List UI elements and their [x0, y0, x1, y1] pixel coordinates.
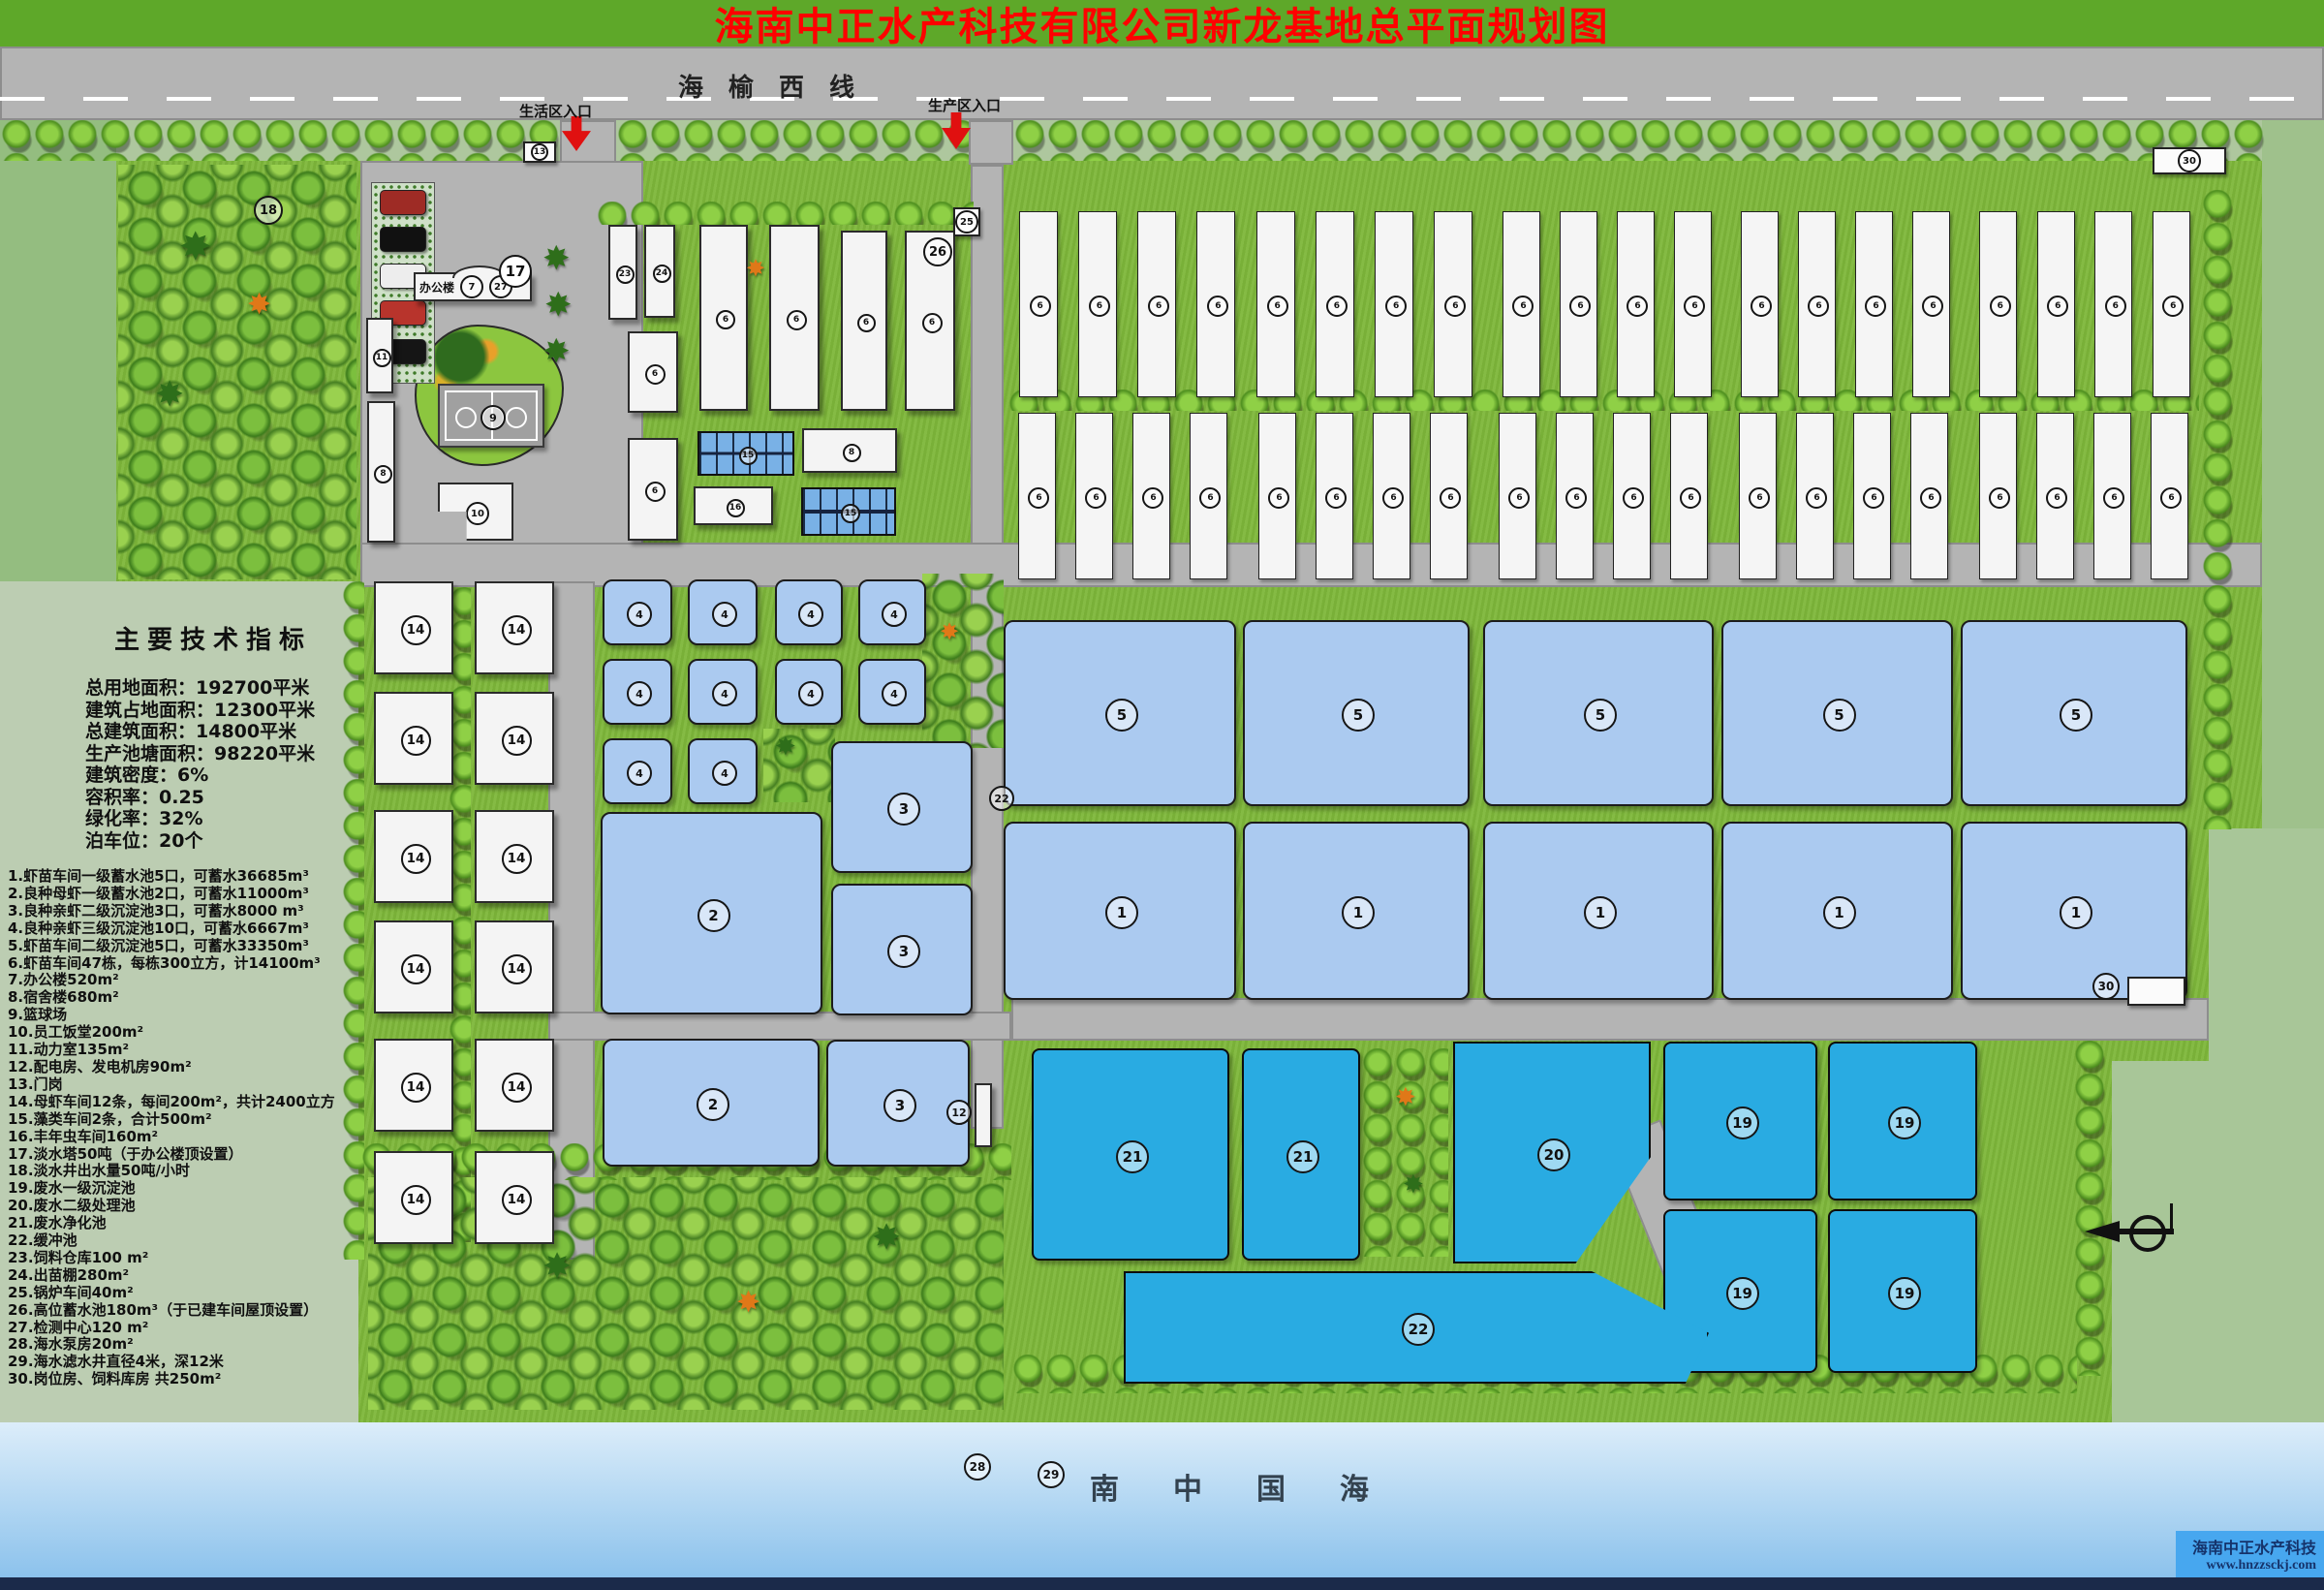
- number-label-4: 4: [798, 681, 823, 706]
- number-label-6: 6: [2162, 296, 2184, 317]
- roadside-bushes: [616, 120, 969, 161]
- workshop-strip: 6: [1910, 413, 1948, 579]
- number-label-15: 15: [739, 447, 758, 465]
- number-label-5: 5: [1823, 699, 1856, 732]
- number-label-6: 6: [1028, 487, 1049, 509]
- number-label-6: 6: [1569, 296, 1591, 317]
- workshop-strip: 6: [1674, 211, 1712, 397]
- number-label-6: 6: [1207, 296, 1228, 317]
- legend-item: 5.虾苗车间二级沉淀池5口，可蓄水33350m³: [8, 938, 335, 955]
- ornamental-tree: ✸: [940, 620, 959, 643]
- number-label-22: 22: [1402, 1313, 1435, 1346]
- indicator-line: 绿化率：32%: [85, 808, 315, 830]
- number-label-6: 6: [1684, 296, 1705, 317]
- legend-item: 22.缓冲池: [8, 1232, 335, 1250]
- number-label-14: 14: [502, 615, 532, 645]
- number-label-6: 6: [2160, 487, 2182, 509]
- number-label-6: 6: [2103, 487, 2124, 509]
- number-label-6: 6: [1326, 296, 1348, 317]
- number-label-6: 6: [2105, 296, 2126, 317]
- workshop-strip: 6: [1739, 413, 1777, 579]
- freshwater-well-18-marker: 18: [254, 196, 283, 225]
- number-label-4: 4: [712, 761, 737, 786]
- sediment-pond-3: 3: [826, 1040, 970, 1167]
- forest-tree: ✸: [542, 1250, 572, 1285]
- legend-item: 21.废水净化池: [8, 1215, 335, 1232]
- number-label-14: 14: [502, 954, 532, 984]
- workshop-strip: 6: [1316, 211, 1354, 397]
- pond-divider-bushes: [1361, 1048, 1448, 1257]
- number-label-19: 19: [1888, 1277, 1921, 1310]
- sediment-pond-4: 4: [603, 738, 672, 804]
- number-label-2: 2: [697, 1088, 729, 1121]
- workshop-strip: 6: [2036, 413, 2074, 579]
- number-label-6: 6: [922, 313, 943, 333]
- indicator-line: 总建筑面积：14800平米: [85, 721, 315, 743]
- sea-filter-well-29-marker: 29: [1038, 1461, 1065, 1488]
- shrimp-workshop-row: 6666: [1730, 211, 1959, 395]
- forest-tree: ✸: [155, 378, 184, 413]
- workshop-strip: 6: [1075, 413, 1113, 579]
- number-label-1: 1: [1584, 896, 1617, 929]
- legend-item: 10.员工饭堂200m²: [8, 1024, 335, 1042]
- elevated-tank-26-marker: 26: [923, 237, 952, 266]
- reservoir-pond-1: 1: [1961, 822, 2187, 1000]
- number-label-6: 6: [1680, 487, 1701, 509]
- workshop-strip: 6: [1912, 211, 1950, 397]
- indicators-list: 总用地面积：192700平米建筑占地面积：12300平米总建筑面积：14800平…: [85, 677, 315, 852]
- number-label-25: 25: [955, 210, 978, 234]
- number-label-13: 13: [531, 143, 548, 161]
- sediment-pond-5: 5: [1721, 620, 1953, 806]
- legend-item: 17.淡水塔50吨（于办公楼顶设置）: [8, 1146, 335, 1164]
- mother-shrimp-workshop-14: 14: [374, 920, 453, 1013]
- workshop-strip: 6: [1316, 413, 1353, 579]
- algae-workshop-15: 15: [801, 487, 896, 536]
- workshop-strip: 6: [1078, 211, 1117, 397]
- site-plan-canvas: 6666666666666666666666666666666666666666…: [0, 0, 2324, 1590]
- workshop-strip: 6: [2093, 413, 2131, 579]
- number-label-2: 2: [697, 899, 730, 932]
- number-label-6: 6: [1989, 487, 2010, 509]
- logo-box: 海南中正水产科技 www.hnzzsckj.com: [2176, 1531, 2324, 1577]
- number-label-6: 6: [1751, 296, 1772, 317]
- legend-item: 25.锅炉车间40m²: [8, 1285, 335, 1302]
- legend-item: 6.虾苗车间47栋，每栋300立方，计14100m³: [8, 955, 335, 973]
- compass-arrowhead: [2085, 1221, 2120, 1242]
- number-label-6: 6: [645, 482, 666, 502]
- number-label-3: 3: [887, 935, 920, 968]
- compass-ring: [2129, 1215, 2166, 1252]
- number-label-23: 23: [616, 265, 635, 284]
- number-label-5: 5: [1342, 699, 1375, 732]
- number-label-14: 14: [401, 1185, 431, 1215]
- mother-shrimp-workshop-14: 14: [475, 692, 554, 785]
- number-label-4: 4: [712, 602, 737, 627]
- number-label-6: 6: [716, 310, 735, 329]
- sediment-pond-3: 3: [831, 741, 973, 873]
- buffer-pond-22: 22: [1124, 1271, 1709, 1384]
- forest-tree: ✸: [736, 1289, 760, 1318]
- sediment-pond-4: 4: [688, 659, 758, 725]
- number-label-6: 6: [2046, 487, 2067, 509]
- south-forest: [368, 1177, 1004, 1410]
- number-label-6: 6: [1749, 487, 1770, 509]
- sediment-pond-5: 5: [1483, 620, 1714, 806]
- shrimp-workshop-row: 6666: [1968, 211, 2199, 395]
- algae-workshop-15: 15: [697, 431, 794, 476]
- guard-feed-house-30b-marker: 30: [2092, 973, 2120, 1000]
- sea-pump-house-28-marker: 28: [964, 1453, 991, 1481]
- number-label-24: 24: [653, 265, 671, 283]
- shrimp-workshop-row: 66666666: [1007, 211, 1482, 395]
- number-label-6: 6: [1440, 487, 1461, 509]
- south-cross-road: [1011, 998, 2209, 1041]
- workshop-strip: 6: [1499, 413, 1536, 579]
- legend-item: 8.宿舍楼680m²: [8, 989, 335, 1007]
- number-label-4: 4: [627, 602, 652, 627]
- workshop-strip: 6: [1613, 413, 1651, 579]
- number-label-14: 14: [502, 844, 532, 874]
- reservoir-pond-2: 2: [601, 812, 822, 1014]
- workshop-strip: 6: [1196, 211, 1235, 397]
- feed-warehouse-23: 23: [608, 225, 637, 320]
- number-label-6: 6: [1808, 296, 1829, 317]
- mother-shrimp-workshop-14: 14: [475, 581, 554, 674]
- technical-indicators: 主要技术指标 总用地面积：192700平米建筑占地面积：12300平米总建筑面积…: [85, 620, 315, 852]
- forest-tree: ✸: [247, 291, 271, 320]
- workshop-strip: 6: [1670, 413, 1708, 579]
- number-label-4: 4: [882, 681, 907, 706]
- number-label-6: 6: [1806, 487, 1827, 509]
- legend-item: 2.良种母虾一级蓄水池2口，可蓄水11000m³: [8, 886, 335, 903]
- wastewater-pond-19: 19: [1828, 1209, 1977, 1373]
- sediment-pond-3: 3: [831, 884, 973, 1015]
- number-label-4: 4: [712, 681, 737, 706]
- mother-shrimp-workshop-14: 14: [374, 1151, 453, 1244]
- workshop-strip: 6: [2094, 211, 2132, 397]
- sediment-pond-4: 4: [775, 659, 843, 725]
- mother-shrimp-workshop-14: 14: [475, 920, 554, 1013]
- entrance-road-left: [560, 120, 616, 165]
- legend-item: 26.高位蓄水池180m³（于已建车间屋顶设置）: [8, 1302, 335, 1320]
- number-label-6: 6: [857, 314, 876, 332]
- workshop-strip: 6: [1190, 413, 1227, 579]
- office-building-label: 办公楼: [419, 279, 454, 296]
- number-label-6: 6: [1623, 487, 1644, 509]
- legend-item: 28.海水泵房20m²: [8, 1336, 335, 1354]
- power-room-11: 11: [366, 318, 393, 393]
- workshop-strip: 6: [1979, 413, 2017, 579]
- workshop-6: 6: [699, 225, 748, 411]
- sediment-pond-4: 4: [858, 659, 926, 725]
- number-label-14: 14: [502, 1073, 532, 1103]
- legend-item: 18.淡水井出水量50吨/小时: [8, 1163, 335, 1180]
- ornamental-tree: ✸: [1403, 1172, 1424, 1198]
- wastewater-pond-19: 19: [1828, 1042, 1977, 1200]
- ornamental-tree: ✸: [775, 734, 796, 760]
- workshop-strip: 6: [1556, 413, 1594, 579]
- number-label-6: 6: [1267, 296, 1288, 317]
- number-label-14: 14: [401, 1073, 431, 1103]
- number-label-6: 6: [1089, 296, 1110, 317]
- number-label-6: 6: [2047, 296, 2068, 317]
- east-bushes: [2201, 190, 2236, 829]
- number-label-6: 6: [1627, 296, 1648, 317]
- indicator-line: 生产池塘面积：98220平米: [85, 743, 315, 765]
- workshop-strip: 6: [1796, 413, 1834, 579]
- entrance-label-right: 生产区入口: [928, 95, 1001, 115]
- purification-pond-21: 21: [1242, 1048, 1360, 1261]
- legend-item: 7.办公楼520m²: [8, 972, 335, 989]
- number-label-6: 6: [1030, 296, 1051, 317]
- number-label-6: 6: [1268, 487, 1289, 509]
- number-label-9: 9: [480, 405, 506, 430]
- court-key-right: [506, 407, 527, 428]
- sediment-pond-4: 4: [858, 579, 926, 645]
- power-distribution-12-marker: 12: [946, 1100, 972, 1125]
- small-grove: [922, 574, 1004, 748]
- gate-house-13: 13: [523, 141, 556, 163]
- roadside-bushes: [0, 120, 560, 161]
- palm-tree: ✸: [542, 335, 571, 368]
- legend-item: 27.检测中心120 m²: [8, 1320, 335, 1337]
- legend-item: 4.良种亲虾三级沉淀池10口，可蓄水6667m³: [8, 920, 335, 938]
- number-label-30: 30: [2178, 149, 2201, 172]
- mother-shrimp-workshop-14: 14: [475, 1151, 554, 1244]
- workshop-strip: 6: [1434, 211, 1472, 397]
- purification-pond-21: 21: [1032, 1048, 1229, 1261]
- number-label-14: 14: [401, 726, 431, 756]
- palm-tree: ✸: [544, 289, 573, 322]
- legend-item: 19.废水一级沉淀池: [8, 1180, 335, 1198]
- workshop-strip: 6: [1617, 211, 1655, 397]
- indicator-line: 泊车位：20个: [85, 830, 315, 853]
- number-label-6: 6: [1325, 487, 1347, 509]
- logo-url: www.hnzzsckj.com: [2206, 1558, 2316, 1574]
- west-forest: [118, 165, 356, 579]
- number-label-5: 5: [2060, 699, 2092, 732]
- indicator-line: 容积率：0.25: [85, 787, 315, 809]
- number-label-19: 19: [1888, 1107, 1921, 1139]
- number-label-1: 1: [1823, 896, 1856, 929]
- reservoir-pond-1: 1: [1721, 822, 1953, 1000]
- indicator-line: 建筑密度：6%: [85, 764, 315, 787]
- mother-shrimp-workshop-14: 14: [374, 692, 453, 785]
- entrance-road-right: [969, 120, 1013, 165]
- legend-item: 9.篮球场: [8, 1007, 335, 1024]
- palm-tree: ✸: [542, 242, 571, 275]
- number-label-6: 6: [1990, 296, 2011, 317]
- sediment-pond-5: 5: [1961, 620, 2187, 806]
- legend-item: 20.废水二级处理池: [8, 1198, 335, 1215]
- number-label-1: 1: [2060, 896, 2092, 929]
- number-label-6: 6: [1922, 296, 1943, 317]
- forest-tree: ✸: [872, 1221, 901, 1256]
- legend-item: 30.岗位房、饲料库房 共250m²: [8, 1371, 335, 1388]
- shrimp-workshop-row: 6666: [1248, 413, 1476, 577]
- workshop-strip: 6: [1741, 211, 1779, 397]
- number-label-6: 6: [1085, 487, 1106, 509]
- road-centerline: [0, 97, 2324, 101]
- water-tower-17-marker: 17: [499, 255, 532, 288]
- number-label-3: 3: [887, 793, 920, 826]
- compass-tail: [2170, 1203, 2173, 1231]
- number-label-6: 6: [645, 364, 666, 385]
- workshop-strip: 6: [1019, 211, 1058, 397]
- buffer-pond-22-marker: 22: [989, 786, 1014, 811]
- sediment-pond-4: 4: [688, 579, 758, 645]
- reservoir-pond-1: 1: [1004, 822, 1236, 1000]
- number-label-6: 6: [1385, 296, 1407, 317]
- number-label-1: 1: [1342, 896, 1375, 929]
- number-label-10: 10: [466, 502, 489, 525]
- legend-item: 11.动力室135m²: [8, 1042, 335, 1059]
- workshop-strip: 6: [1798, 211, 1836, 397]
- roadside-bushes: [1013, 120, 2265, 161]
- entrance-label-left: 生活区入口: [519, 101, 592, 121]
- number-label-6: 6: [1444, 296, 1466, 317]
- number-label-6: 6: [1863, 487, 1884, 509]
- number-label-3: 3: [883, 1089, 916, 1122]
- workshop-strip: 6: [2151, 413, 2188, 579]
- cluster-bushes: [596, 202, 974, 225]
- number-label-11: 11: [373, 349, 391, 367]
- guard-feed-house-30b: [2127, 977, 2185, 1006]
- legend-item: 15.藻类车间2条，合计500m²: [8, 1111, 335, 1129]
- west-cross-road: [548, 1012, 1011, 1041]
- workshop-strip: 6: [1375, 211, 1413, 397]
- legend-item: 14.母虾车间12条，每间200m²，共计2400立方: [8, 1094, 335, 1111]
- brine-shrimp-workshop-16: 16: [694, 486, 773, 525]
- number-label-4: 4: [627, 681, 652, 706]
- highway: [0, 47, 2324, 120]
- legend-item: 16.丰年虫车间160m²: [8, 1129, 335, 1146]
- number-label-7: 7: [460, 275, 483, 298]
- workshop-strip: 6: [1560, 211, 1597, 397]
- shrimp-workshop-row: 6666: [1728, 413, 1957, 577]
- indicator-line: 建筑占地面积：12300平米: [85, 700, 315, 722]
- reservoir-pond-2: 2: [603, 1039, 820, 1167]
- parked-car: [380, 227, 426, 252]
- number-label-6: 6: [1508, 487, 1530, 509]
- number-label-6: 6: [1920, 487, 1941, 509]
- shrimp-workshop-row: 6666: [1968, 413, 2197, 577]
- mother-shrimp-workshop-14: 14: [475, 1039, 554, 1132]
- workshop-6: 6: [841, 231, 887, 411]
- sea-name: 南中国海: [1090, 1465, 1423, 1508]
- legend-item: 24.出苗棚280m²: [8, 1267, 335, 1285]
- mother-shrimp-workshop-14: 14: [374, 810, 453, 903]
- shrimp-workshop-row: 6666: [1492, 211, 1720, 395]
- indicators-heading: 主要技术指标: [114, 620, 315, 656]
- number-label-8: 8: [843, 444, 861, 462]
- sediment-pond-4: 4: [688, 738, 758, 804]
- legend-item: 12.配电房、发电机房90m²: [8, 1059, 335, 1076]
- workshop-strip: 6: [1853, 413, 1891, 579]
- shrimp-workshop-row: 6666: [1488, 413, 1717, 577]
- legend-item: 13.门岗: [8, 1076, 335, 1094]
- number-label-19: 19: [1726, 1277, 1759, 1310]
- sediment-pond-4: 4: [775, 579, 843, 645]
- workshop-strip: 6: [1503, 211, 1540, 397]
- reservoir-pond-1: 1: [1483, 822, 1714, 1000]
- number-label-21: 21: [1286, 1140, 1319, 1173]
- shrimp-workshop-row: 6666: [1007, 413, 1236, 577]
- workshop-strip: 6: [2037, 211, 2075, 397]
- workshop-6: 6: [628, 331, 678, 413]
- north-arrow: [2085, 1198, 2199, 1267]
- number-label-6: 6: [787, 310, 807, 330]
- guard-feed-house-30: 30: [2153, 147, 2226, 174]
- number-label-14: 14: [502, 726, 532, 756]
- legend-item: 29.海水滤水井直径4米，深12米: [8, 1354, 335, 1371]
- legend-item: 1.虾苗车间一级蓄水池5口，可蓄水36685m³: [8, 868, 335, 886]
- number-label-19: 19: [1726, 1107, 1759, 1139]
- legend-item: 3.良种亲虾二级沉淀池3口，可蓄水8000 m³: [8, 903, 335, 920]
- mother-shrimp-workshop-14: 14: [475, 810, 554, 903]
- basketball-court: 9: [438, 384, 544, 448]
- number-label-6: 6: [1148, 296, 1169, 317]
- sediment-pond-5: 5: [1243, 620, 1470, 806]
- court-key-left: [455, 407, 477, 428]
- number-label-5: 5: [1105, 699, 1138, 732]
- sediment-pond-4: 4: [603, 579, 672, 645]
- power-distribution-12: [975, 1083, 992, 1147]
- number-label-6: 6: [1142, 487, 1163, 509]
- workshop-strip: 6: [1132, 413, 1170, 579]
- logo-company: 海南中正水产科技: [2192, 1535, 2316, 1558]
- sediment-pond-5: 5: [1004, 620, 1236, 806]
- parked-car: [380, 190, 426, 215]
- ornamental-tree: ✸: [746, 257, 765, 280]
- workshop-strip: 6: [2153, 211, 2190, 397]
- number-label-6: 6: [1565, 487, 1587, 509]
- number-label-14: 14: [401, 954, 431, 984]
- workshop-strip: 6: [1979, 211, 2017, 397]
- workshop-strip: 6: [1430, 413, 1468, 579]
- number-label-14: 14: [401, 844, 431, 874]
- road-name: 海榆西线: [678, 68, 880, 104]
- workshop-6: 6: [628, 438, 678, 541]
- workshop-strip: 6: [1256, 211, 1295, 397]
- workshop-strip: 6: [1137, 211, 1176, 397]
- number-label-15: 15: [841, 504, 860, 523]
- number-label-4: 4: [627, 761, 652, 786]
- dormitory-8: 8: [802, 428, 897, 473]
- workshop-strip: 6: [1373, 413, 1410, 579]
- bottom-bar: [0, 1577, 2324, 1590]
- wastewater-pond-19: 19: [1663, 1042, 1817, 1200]
- dormitory-8: 8: [367, 401, 395, 543]
- number-label-16: 16: [727, 499, 745, 517]
- number-label-6: 6: [1199, 487, 1221, 509]
- reservoir-pond-1: 1: [1243, 822, 1470, 1000]
- number-label-6: 6: [1865, 296, 1886, 317]
- workshop-6: 6: [769, 225, 820, 411]
- number-label-21: 21: [1116, 1140, 1149, 1173]
- number-label-4: 4: [882, 602, 907, 627]
- forest-tree: ✸: [179, 228, 212, 266]
- number-label-6: 6: [1512, 296, 1534, 317]
- sediment-pond-4: 4: [603, 659, 672, 725]
- fry-shed-24: 24: [644, 225, 675, 318]
- number-label-6: 6: [1382, 487, 1404, 509]
- number-label-4: 4: [798, 602, 823, 627]
- mother-shrimp-workshop-14: 14: [374, 1039, 453, 1132]
- workshop-strip: 6: [1258, 413, 1296, 579]
- mother-shrimp-workshop-14: 14: [374, 581, 453, 674]
